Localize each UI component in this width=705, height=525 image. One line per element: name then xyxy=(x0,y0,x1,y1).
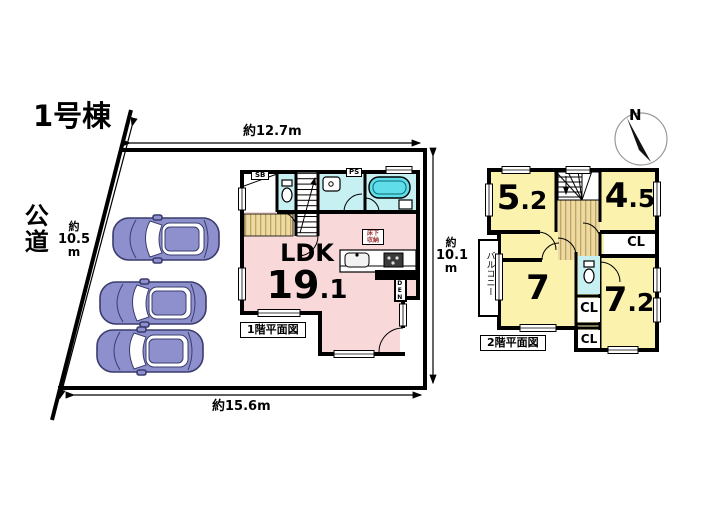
dim-right-label: 約 10.1 m xyxy=(436,237,466,275)
compass-n-label: N xyxy=(629,108,642,124)
dim-left-label: 約 10.5 m xyxy=(56,221,92,259)
dim-left-approx: 約 xyxy=(56,221,92,233)
building-title: 1号棟 xyxy=(33,101,111,131)
hallway-floor-2f xyxy=(558,198,600,260)
kitchen-nook-label: DEN xyxy=(396,280,402,301)
shoe-box-label: SB xyxy=(251,171,269,180)
dim-bottom-label: 約15.6m xyxy=(212,400,271,414)
closet-label-1: CL xyxy=(618,236,654,250)
floor2-caption: 2階平面図 xyxy=(480,335,546,351)
dim-left-value: 10.5 xyxy=(56,233,92,247)
site-boundary-slant xyxy=(52,110,131,420)
road-label: 公道 xyxy=(21,203,46,255)
dim-right-unit: m xyxy=(436,262,466,275)
car-icon-3 xyxy=(97,327,203,375)
pipe-space-label: PS xyxy=(346,168,362,177)
ldk-area-main: 19 xyxy=(267,263,320,307)
closet-label-2: CL xyxy=(578,302,600,316)
car-icon-2 xyxy=(100,279,206,327)
stove-icon xyxy=(384,253,403,267)
genkan-floor xyxy=(244,214,293,236)
dim-right-value: 10.1 xyxy=(436,249,466,263)
dim-left-unit: m xyxy=(56,246,92,259)
parked-cars xyxy=(97,215,219,375)
closet-label-3: CL xyxy=(578,333,600,346)
dim-right-approx: 約 xyxy=(436,237,466,249)
balcony-label: バルコニー xyxy=(484,251,493,296)
room-7-label: 7 xyxy=(517,271,559,307)
ldk-area-label: 19.1 xyxy=(258,266,356,306)
floorplan-drawing xyxy=(0,0,705,525)
dim-top-label: 約12.7m xyxy=(243,125,302,139)
floor1-caption: 1階平面図 xyxy=(240,322,306,338)
room-5-2-label: 5.2 xyxy=(495,181,549,217)
room-4-5-label: 4.5 xyxy=(603,179,657,215)
sink-icon xyxy=(323,177,340,191)
toilet-icon-1f xyxy=(282,180,292,202)
floor-storage-label: 床下 収納 xyxy=(362,229,384,245)
room-7-2-label: 7.2 xyxy=(600,283,658,319)
ldk-area-frac: .1 xyxy=(319,275,347,305)
floorplan-page: 1号棟 公道 約 10.5 m 約12.7m 約 10.1 m 約15.6m N… xyxy=(0,0,705,525)
car-icon-1 xyxy=(113,215,219,263)
toilet-icon-2f xyxy=(584,261,594,283)
